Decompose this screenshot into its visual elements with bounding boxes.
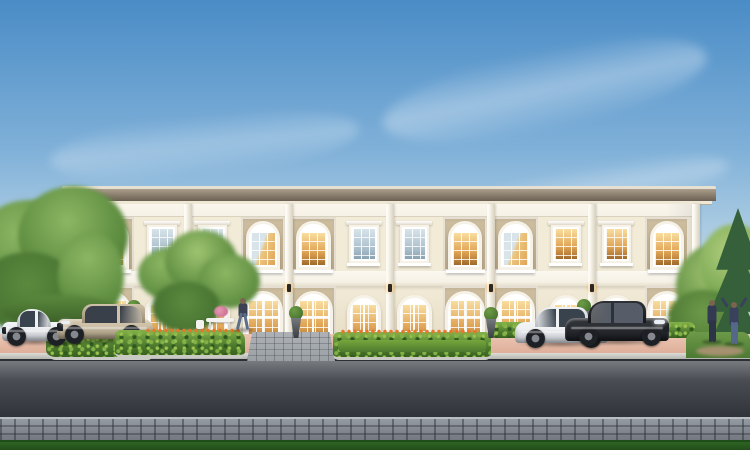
upper-arched-window	[650, 221, 685, 270]
car-grille	[57, 323, 63, 331]
car-cabin	[82, 304, 145, 323]
car-glass	[591, 303, 643, 323]
person-leg-right	[734, 322, 737, 344]
window-glass	[555, 229, 577, 259]
window-glass	[251, 233, 276, 265]
car-headlight	[654, 320, 664, 324]
car-grille	[663, 323, 669, 332]
car-headlight	[61, 321, 71, 324]
window-glass	[353, 229, 375, 259]
upper-arched-window	[296, 221, 331, 270]
architectural-rendering-scene	[0, 0, 750, 450]
upper-arched-window	[498, 221, 533, 270]
person-head	[709, 300, 715, 306]
window-sill	[398, 263, 431, 266]
window-sill	[496, 270, 535, 273]
roof-fascia	[62, 189, 716, 201]
paver-sidewalk	[0, 417, 750, 442]
car-b-pillar	[611, 303, 614, 323]
person-head	[240, 298, 246, 304]
upper-arched-window	[448, 221, 483, 270]
person-man-walking-at-door	[236, 298, 250, 330]
flower-bouquet	[214, 306, 228, 317]
car-cabin	[588, 301, 646, 323]
asphalt-road	[0, 360, 750, 417]
car-headlight	[5, 324, 12, 327]
door-transom-bar	[450, 316, 480, 318]
sconce-lamp-icon	[489, 284, 493, 292]
topiary-ball	[484, 307, 498, 321]
upper-rect-window	[349, 225, 379, 263]
person-head	[731, 302, 737, 308]
car-glass	[20, 311, 48, 327]
urn-pot	[485, 319, 497, 338]
sconce-lamp-icon	[287, 284, 291, 292]
sconce-lamp-icon	[590, 284, 594, 292]
topiary-urn	[483, 307, 499, 338]
sconce-lamp-icon	[388, 284, 392, 292]
window-sill	[347, 263, 380, 266]
topiary-urn	[288, 306, 304, 338]
window-glass	[655, 233, 680, 265]
car-b-pillar	[556, 309, 559, 327]
facade-bay-6	[339, 204, 390, 348]
window-glass	[301, 233, 326, 265]
car-wheel-front	[642, 327, 661, 346]
window-glass	[404, 229, 426, 259]
urn-pot	[290, 318, 302, 338]
facade-bay-7	[389, 204, 440, 348]
car-black-sedan-right	[565, 298, 669, 344]
lawn-strip-center	[338, 340, 486, 352]
window-sill	[600, 263, 633, 266]
upper-rect-window	[551, 225, 581, 263]
foreground-grass-strip	[0, 440, 750, 450]
car-side-highlight	[571, 327, 663, 329]
person-woman-standing	[705, 300, 719, 342]
pilaster	[386, 204, 394, 348]
dirt-path	[696, 346, 744, 356]
door-transom-bar	[248, 316, 278, 318]
car-side-highlight	[6, 330, 64, 332]
upper-rect-window	[400, 225, 430, 263]
flower-row-left	[145, 328, 241, 334]
window-glass	[606, 229, 628, 259]
window-glass	[503, 233, 528, 265]
upper-rect-window	[602, 225, 632, 263]
window-sill	[446, 270, 485, 273]
car-side-highlight	[63, 327, 147, 329]
flower-row-center	[340, 329, 480, 335]
car-cabin	[17, 309, 51, 327]
topiary-ball	[289, 306, 303, 320]
hedge-bed-left-front	[115, 330, 245, 358]
person-leg-right	[712, 320, 715, 342]
window-glass	[453, 233, 478, 265]
car-glass	[85, 306, 142, 323]
car-b-pillar	[35, 311, 38, 327]
person-leg-left	[236, 313, 243, 330]
window-sill	[549, 263, 582, 266]
person-person-arms-raised	[727, 302, 741, 344]
window-sill	[294, 270, 333, 273]
car-b-pillar	[117, 306, 120, 323]
